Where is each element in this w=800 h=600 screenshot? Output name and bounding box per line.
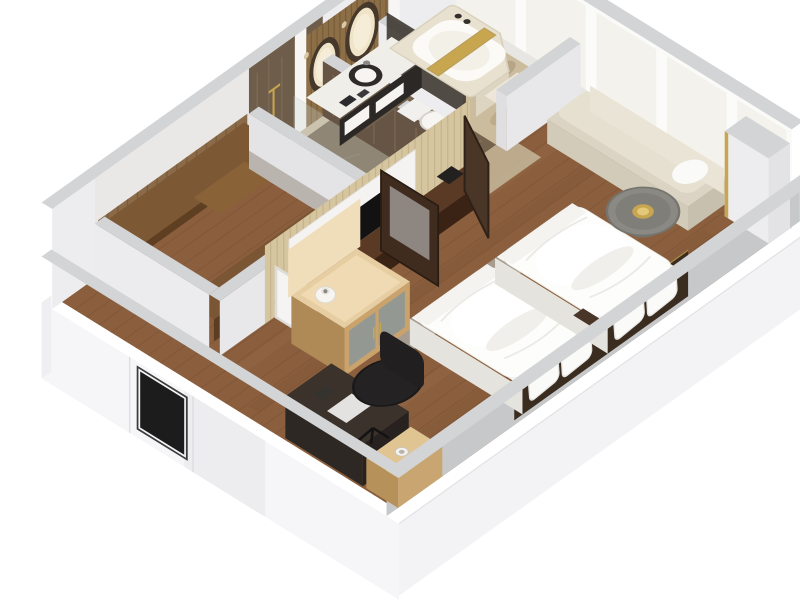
corner-gold-trim <box>725 131 729 218</box>
w-corner-cap <box>42 296 52 379</box>
white-vase <box>315 287 335 303</box>
doorway-jamb-right <box>496 90 507 152</box>
floorplan-3d-render <box>0 0 800 600</box>
floorplan-render-canvas <box>0 0 800 600</box>
